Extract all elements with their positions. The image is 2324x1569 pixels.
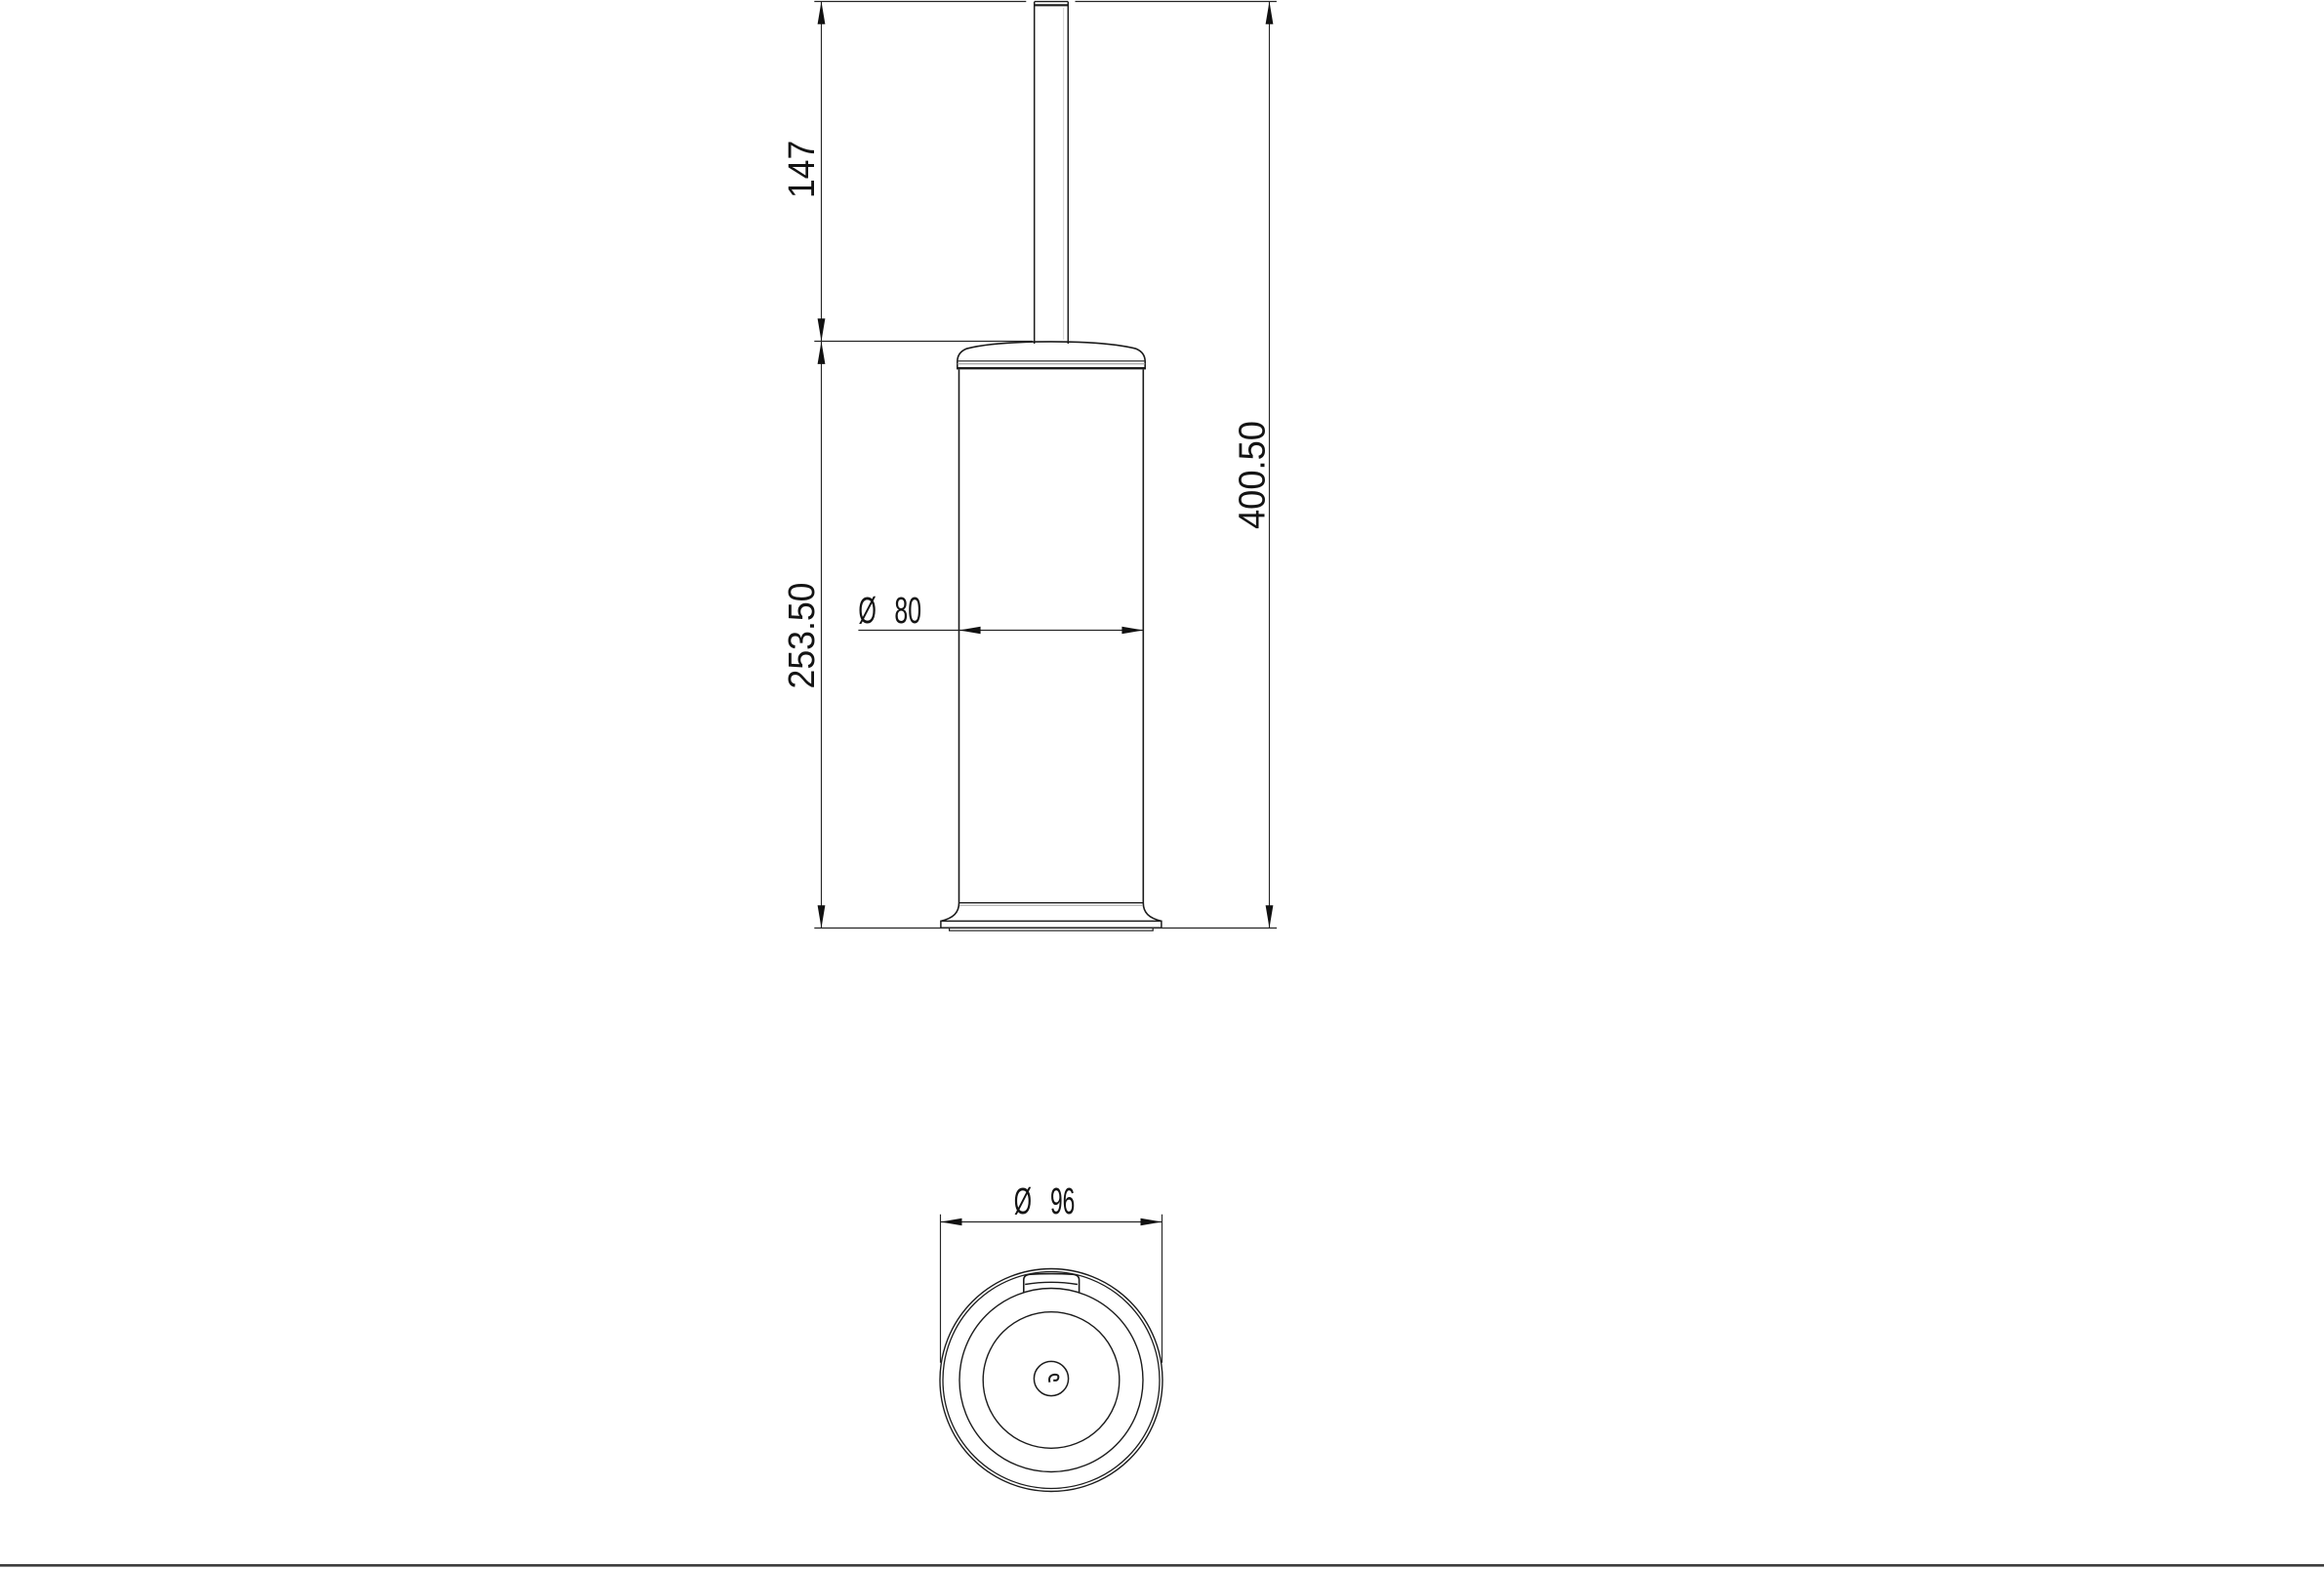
svg-text:147: 147	[782, 141, 823, 199]
svg-text:253.50: 253.50	[782, 583, 823, 689]
svg-text:96: 96	[1050, 1181, 1075, 1222]
svg-text:400.50: 400.50	[1233, 421, 1274, 529]
svg-text:80: 80	[894, 591, 921, 632]
svg-text:Ø: Ø	[858, 591, 877, 632]
svg-text:Ø: Ø	[1014, 1181, 1032, 1222]
